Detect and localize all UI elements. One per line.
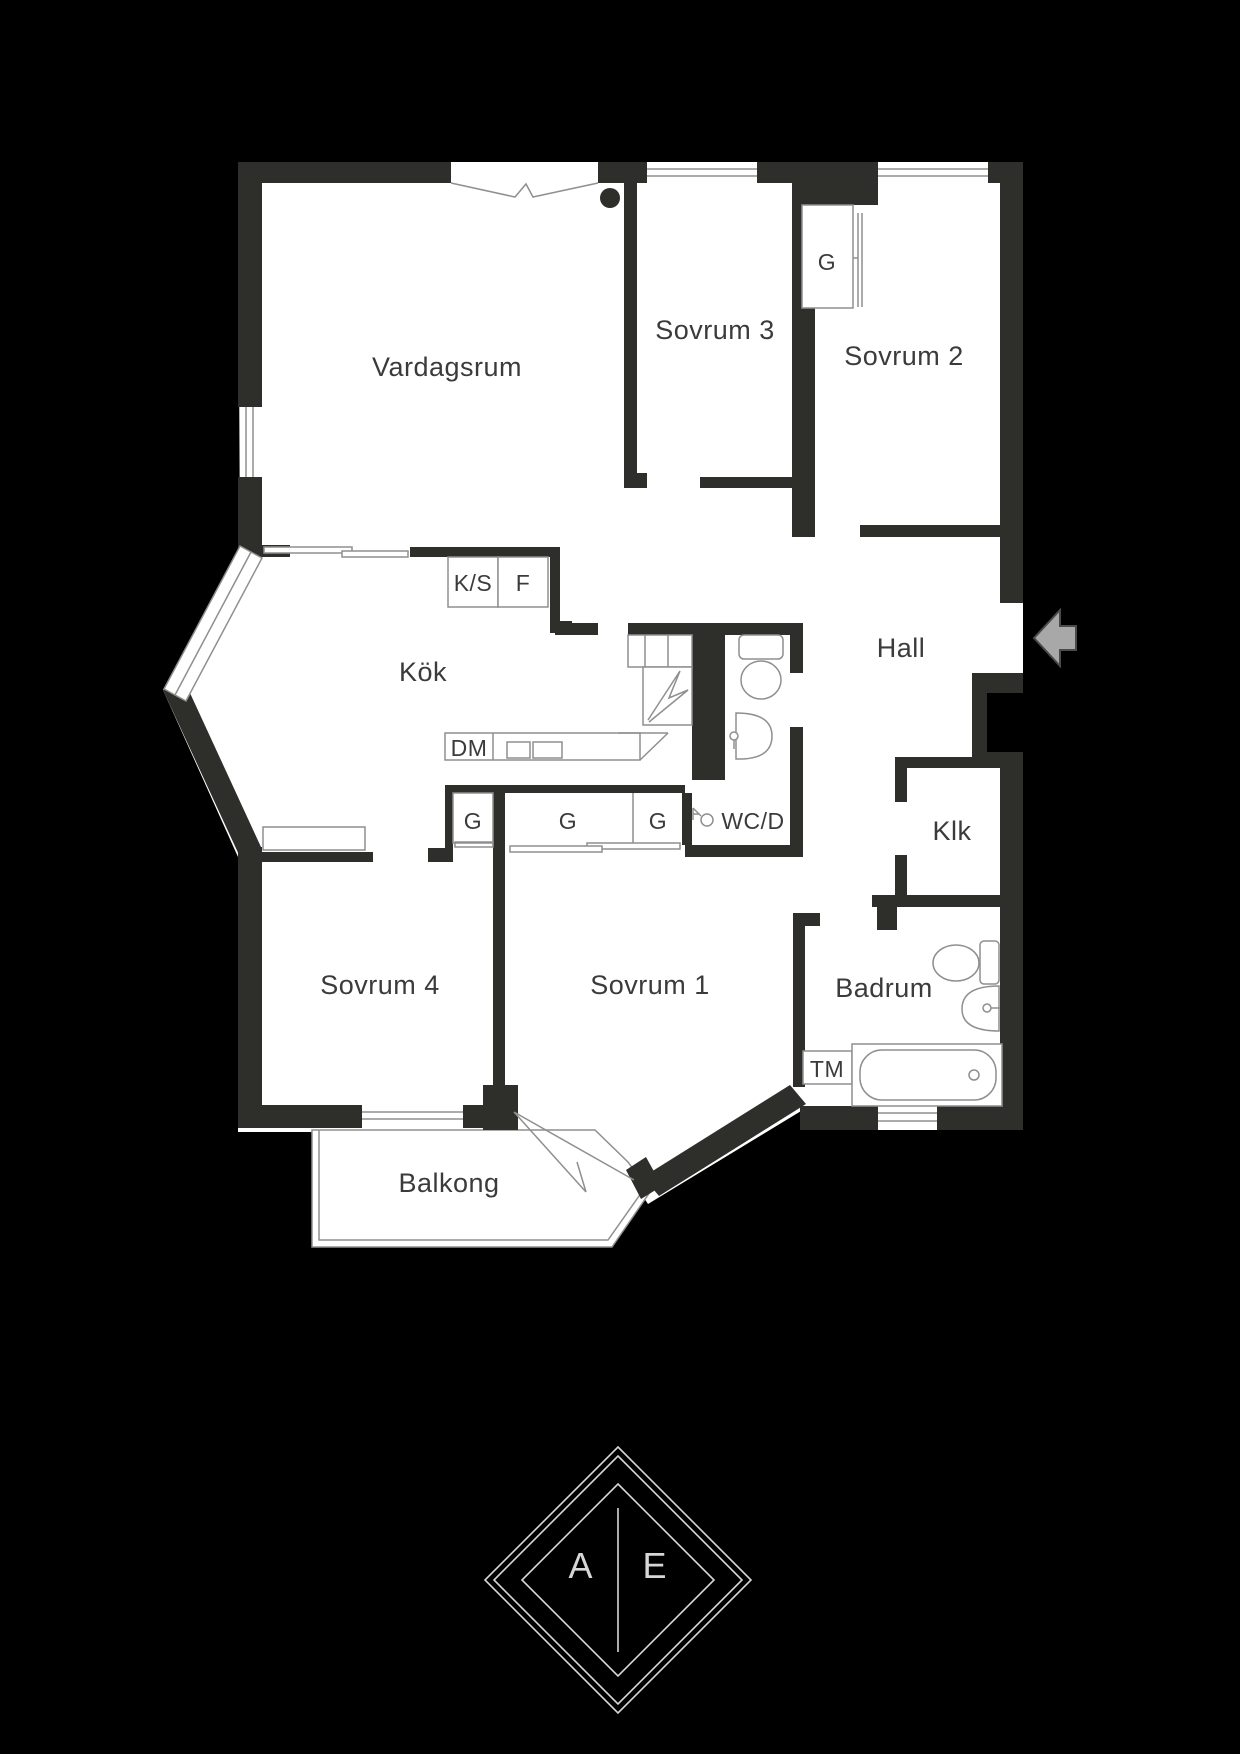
toilet-wcd-icon (739, 635, 783, 699)
label-klk: Klk (932, 816, 971, 846)
label-g1: G (464, 808, 482, 834)
label-sovrum2: Sovrum 2 (844, 341, 964, 371)
label-badrum: Badrum (835, 973, 933, 1003)
label-sovrum3: Sovrum 3 (655, 315, 775, 345)
label-sovrum1: Sovrum 1 (590, 970, 710, 1000)
label-vardagsrum: Vardagsrum (372, 352, 522, 382)
chimney-dot (600, 188, 620, 208)
label-hall: Hall (877, 633, 926, 663)
label-g-sovrum2: G (818, 249, 836, 275)
label-g3: G (649, 808, 667, 834)
label-balkong: Balkong (398, 1168, 499, 1198)
brand-logo: A E (485, 1447, 751, 1713)
toilet-badrum-icon (933, 941, 999, 984)
label-dm: DM (451, 735, 488, 761)
label-wcd: WC/D (721, 808, 784, 834)
floorplan-svg: Vardagsrum Sovrum 3 Sovrum 2 Kök Hall Kl… (0, 0, 1240, 1754)
label-ks: K/S (454, 570, 493, 596)
radiator-box (263, 827, 365, 850)
logo-letter-e: E (642, 1545, 667, 1586)
label-tm: TM (810, 1056, 844, 1082)
label-g2: G (559, 808, 577, 834)
kitchen-cabinet-column (628, 635, 692, 667)
label-kok: Kök (399, 657, 447, 687)
sink-wcd-icon (730, 713, 772, 759)
floorplan-page: Vardagsrum Sovrum 3 Sovrum 2 Kök Hall Kl… (0, 0, 1240, 1754)
stove-icon (643, 667, 692, 725)
label-f: F (516, 570, 531, 596)
bathtub-icon (852, 1044, 1002, 1106)
label-sovrum4: Sovrum 4 (320, 970, 440, 1000)
entrance-arrow-icon (1034, 610, 1076, 666)
logo-letter-a: A (568, 1545, 593, 1586)
